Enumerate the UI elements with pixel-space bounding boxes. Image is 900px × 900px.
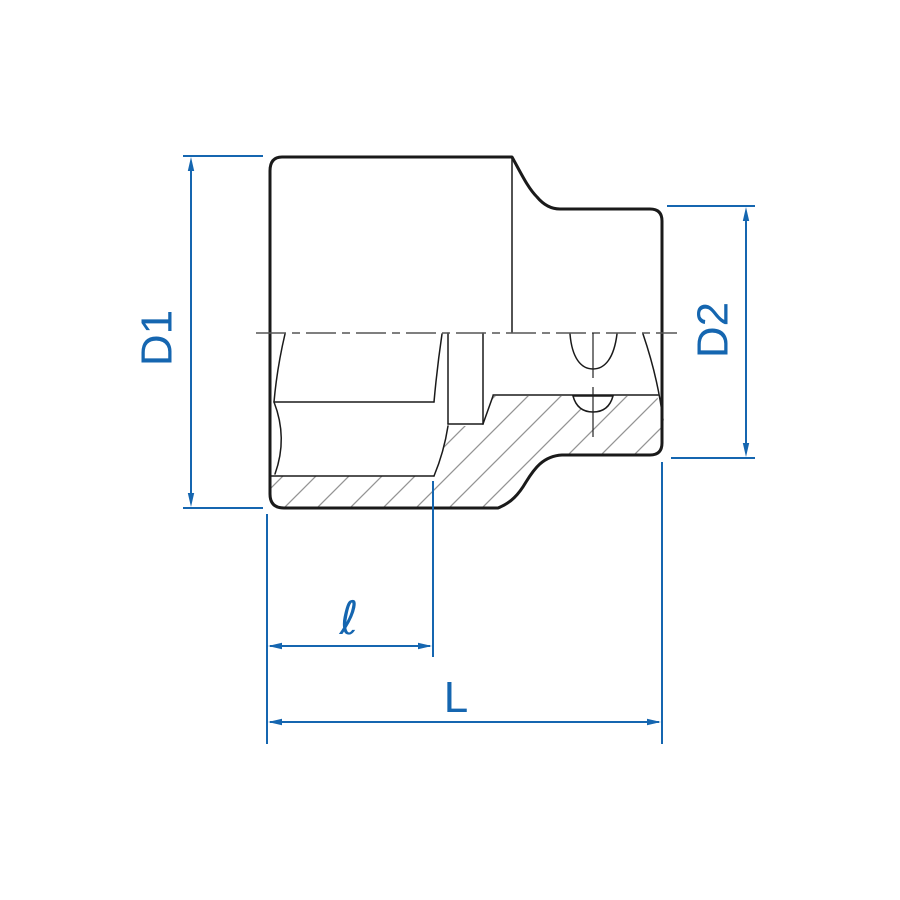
d2-label: D2 [689, 302, 738, 358]
hex-mouth-chamfer-lower [274, 402, 281, 474]
section-hatch [271, 396, 663, 508]
d1-arrow-down [188, 493, 194, 507]
drawing-canvas: D1 D2 ℓ L [0, 0, 900, 900]
l-small-label: ℓ [338, 591, 358, 645]
d2-arrow-up [743, 207, 749, 221]
l-small-arrow-right [418, 643, 432, 649]
d1-label: D1 [133, 310, 182, 366]
l-total-arrow-left [268, 719, 282, 725]
l-total-arrow-right [647, 719, 661, 725]
l-total-label: L [444, 673, 468, 722]
d1-arrow-up [188, 157, 194, 171]
l-small-arrow-left [268, 643, 282, 649]
dimension-d1: D1 [133, 156, 263, 508]
hex-mouth-chamfer-upper [274, 334, 285, 402]
socket-technical-drawing: D1 D2 ℓ L [0, 0, 900, 900]
d2-arrow-down [743, 443, 749, 457]
hex-end-upper-curve [434, 334, 442, 402]
dimension-d2: D2 [667, 206, 755, 458]
